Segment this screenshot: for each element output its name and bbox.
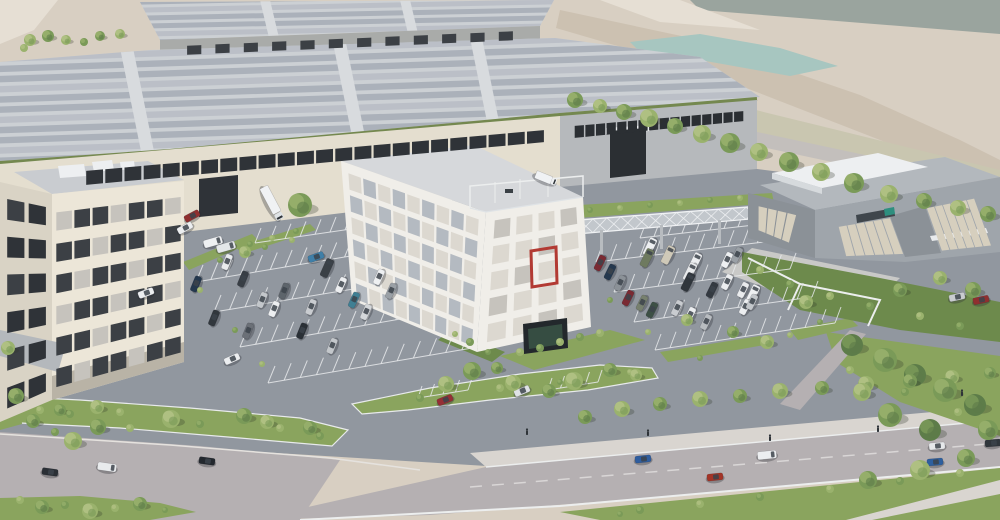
window-cell <box>724 112 733 123</box>
window-cell <box>527 130 544 144</box>
window-cell <box>278 152 295 167</box>
bridge-column <box>718 220 721 244</box>
bush <box>51 428 59 436</box>
bush <box>756 266 764 274</box>
bush <box>536 344 544 352</box>
window-cell <box>163 163 180 178</box>
window-cell <box>93 236 109 256</box>
window-cell <box>165 197 181 215</box>
bush <box>787 332 793 338</box>
window-cell <box>374 144 391 158</box>
bush <box>269 235 275 241</box>
window-cell <box>562 255 580 275</box>
window-cell <box>129 230 145 249</box>
window-cell <box>147 256 163 276</box>
bush <box>916 312 924 320</box>
bush <box>617 511 623 517</box>
window-cell <box>240 156 257 171</box>
bush <box>846 366 854 374</box>
window-cell <box>147 199 163 218</box>
bush <box>496 384 504 392</box>
bush <box>677 200 683 206</box>
window-cell <box>29 307 46 329</box>
window-cell <box>300 40 314 50</box>
bush <box>111 504 119 512</box>
terrace-furniture <box>505 189 513 193</box>
bush <box>126 424 134 432</box>
bush <box>116 408 124 416</box>
bush <box>866 302 874 310</box>
window-cell <box>585 124 594 137</box>
window-cell <box>272 41 286 51</box>
bush <box>416 394 424 402</box>
bush <box>66 410 74 418</box>
window-cell <box>7 310 24 333</box>
window-cell <box>357 38 371 48</box>
window-cell <box>125 166 142 181</box>
bush <box>607 297 613 303</box>
window-cell <box>355 146 372 160</box>
window-cell <box>93 296 109 317</box>
window-cell <box>431 139 448 153</box>
bush <box>293 228 299 234</box>
bush <box>289 237 295 243</box>
window-cell <box>105 168 122 183</box>
bridge-column <box>660 225 663 249</box>
window-cell <box>182 161 199 176</box>
bush <box>516 348 524 356</box>
bush <box>737 195 743 201</box>
window-cell <box>74 299 90 320</box>
bush <box>276 424 284 432</box>
bush <box>901 388 909 396</box>
window-cell <box>539 235 556 255</box>
window-cell <box>702 114 711 125</box>
bush <box>896 477 904 485</box>
bush <box>232 327 238 333</box>
bush <box>80 38 88 46</box>
bush <box>576 333 584 341</box>
pedestrian <box>647 429 649 436</box>
pedestrian <box>961 389 963 396</box>
window-cell <box>297 151 314 166</box>
window-cell <box>470 33 484 43</box>
window-cell <box>259 154 276 169</box>
bush <box>557 379 563 385</box>
window-cell <box>93 206 109 226</box>
window-cell <box>514 264 532 285</box>
window-cell <box>450 137 467 151</box>
window-cell <box>129 202 145 221</box>
window-cell <box>692 115 701 126</box>
window-cell <box>412 140 429 154</box>
window-cell <box>29 274 46 294</box>
window-cell <box>215 44 229 54</box>
loading-dock-portal <box>199 175 238 217</box>
window-cell <box>385 36 399 46</box>
window-cell <box>165 253 181 272</box>
window-cell <box>29 239 46 259</box>
bush <box>817 319 823 325</box>
bush <box>645 329 651 335</box>
window-cell <box>508 132 525 146</box>
bush <box>316 432 324 440</box>
window-cell <box>111 292 127 313</box>
bush <box>697 355 703 361</box>
window-cell <box>492 243 510 264</box>
window-cell <box>111 233 127 253</box>
bush <box>696 500 704 508</box>
bush <box>485 349 491 355</box>
window-cell <box>56 211 72 231</box>
hvac-unit <box>58 164 86 178</box>
window-cell <box>111 204 127 223</box>
window-cell <box>489 134 506 148</box>
scene-canvas <box>0 0 1000 520</box>
window-cell <box>442 34 456 44</box>
bridge-column <box>600 230 603 254</box>
bush <box>162 507 168 513</box>
window-cell <box>628 120 637 132</box>
bush <box>956 322 964 330</box>
window-cell <box>56 241 72 262</box>
window-cell <box>7 199 24 222</box>
bush <box>617 205 623 211</box>
bush <box>20 44 28 52</box>
window-cell <box>494 218 511 239</box>
window-cell <box>201 159 218 174</box>
bush <box>826 485 834 493</box>
window-cell <box>187 45 201 55</box>
window-cell <box>86 169 103 185</box>
window-cell <box>93 266 109 286</box>
window-cell <box>539 260 556 281</box>
pedestrian <box>526 428 528 435</box>
bush <box>452 331 458 337</box>
window-cell <box>393 142 410 156</box>
window-cell <box>596 123 605 136</box>
window-cell <box>470 135 487 149</box>
bush <box>756 493 764 501</box>
window-cell <box>499 31 513 41</box>
window-cell <box>560 207 577 227</box>
bush <box>259 361 265 367</box>
window-cell <box>129 259 145 279</box>
bush <box>587 207 593 213</box>
bush <box>36 406 44 414</box>
window-cell <box>607 122 616 134</box>
bush <box>786 280 794 288</box>
window-cell <box>56 303 72 324</box>
window-cell <box>329 39 343 49</box>
bush <box>556 338 564 346</box>
bush <box>247 241 253 247</box>
pedestrian <box>769 434 771 441</box>
bush <box>197 287 203 293</box>
bush <box>636 506 644 514</box>
bush <box>61 501 69 509</box>
bush <box>954 408 962 416</box>
window-cell <box>147 228 163 247</box>
bush <box>707 197 713 203</box>
bush <box>262 244 268 250</box>
bush <box>596 329 604 337</box>
window-cell <box>56 272 72 293</box>
window-cell <box>74 239 90 259</box>
window-cell <box>144 164 161 179</box>
window-cell <box>414 35 428 45</box>
window-cell <box>561 231 578 251</box>
window-cell <box>335 147 352 161</box>
window-cell <box>220 157 237 172</box>
window-cell <box>575 125 584 138</box>
window-cell <box>165 281 181 301</box>
window-cell <box>516 214 532 234</box>
window-cell <box>244 43 258 53</box>
window-cell <box>74 269 90 290</box>
bush <box>826 292 834 300</box>
warehouse-entry-portal <box>610 128 646 178</box>
bush <box>217 257 223 263</box>
window-cell <box>7 274 24 295</box>
window-cell <box>7 237 24 258</box>
bush <box>16 496 24 504</box>
aerial-rendering <box>0 0 1000 520</box>
pedestrian <box>877 425 879 432</box>
window-cell <box>74 208 90 228</box>
bush <box>466 338 474 346</box>
bush <box>956 469 964 477</box>
window-cell <box>29 203 46 225</box>
window-cell <box>539 211 555 231</box>
window-cell <box>713 113 722 124</box>
window-cell <box>617 121 626 133</box>
window-cell <box>734 111 743 122</box>
window-cell <box>316 149 333 164</box>
window-cell <box>490 269 508 290</box>
window-cell <box>111 263 127 283</box>
bush <box>647 202 653 208</box>
bush <box>196 420 204 428</box>
